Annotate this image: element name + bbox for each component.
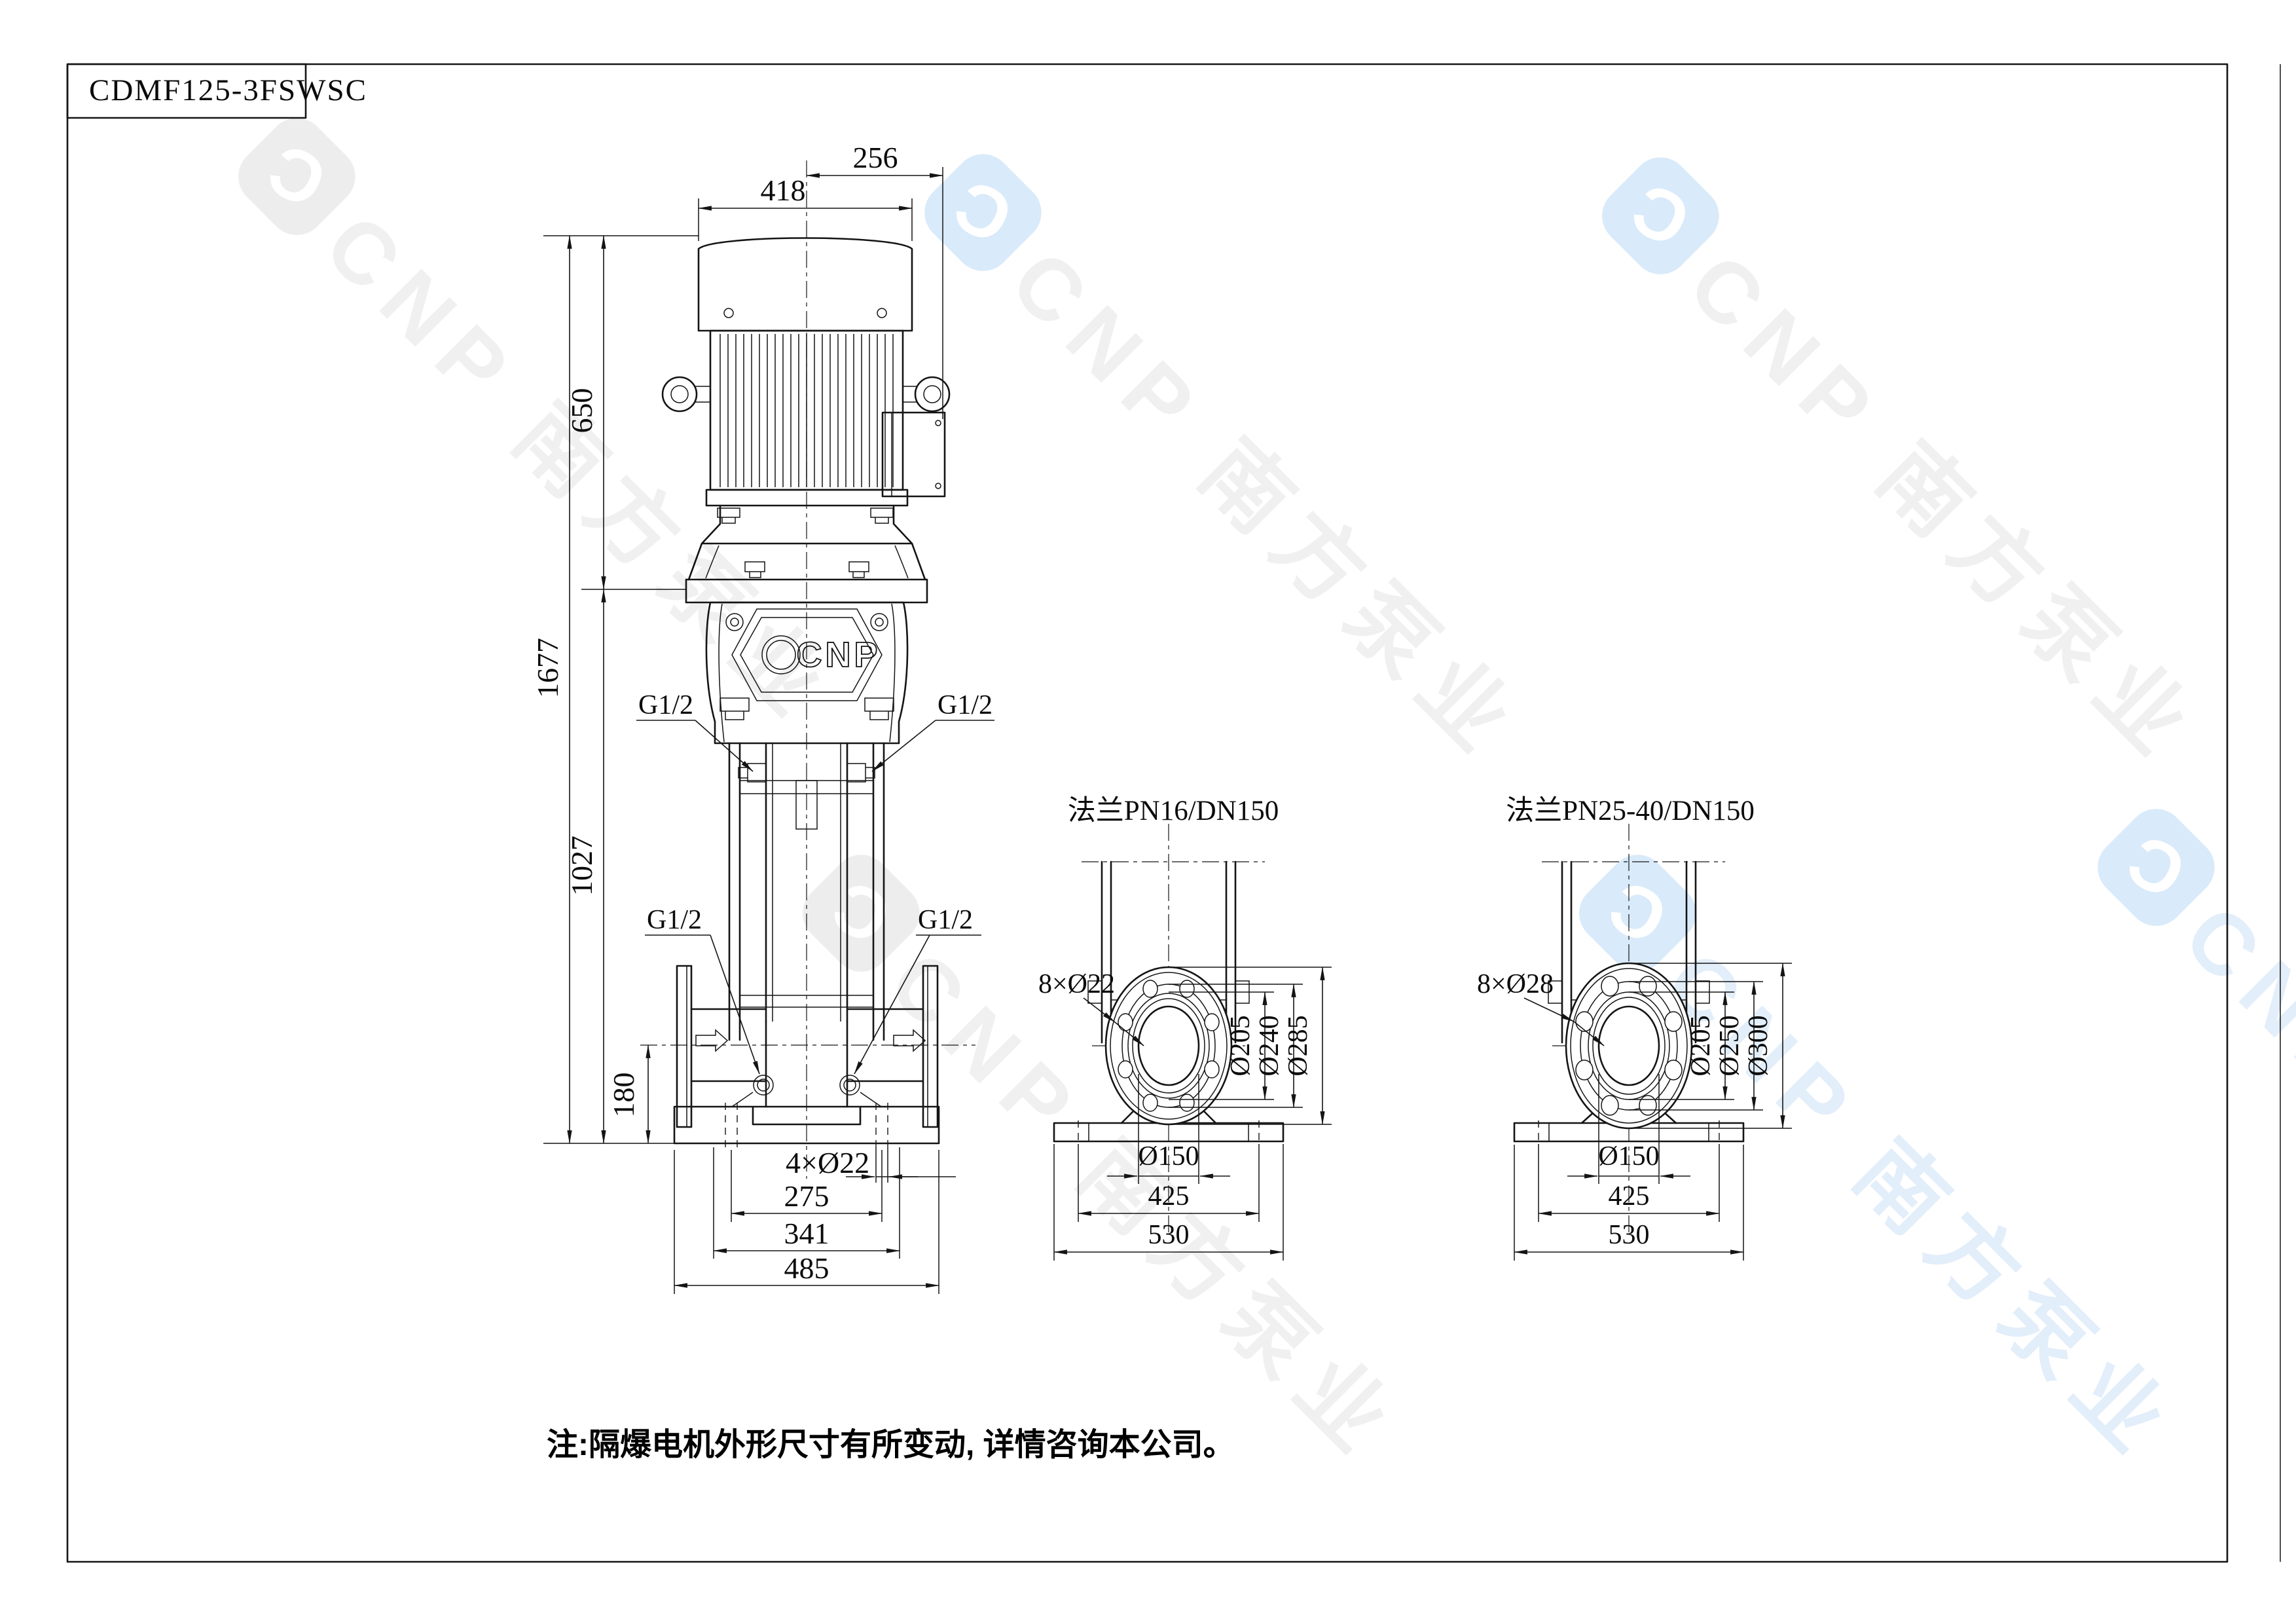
flange2-dim-port: Ø150 (1598, 1141, 1659, 1172)
vent-label-right: G1/2 (938, 690, 993, 720)
drain-label-left: G1/2 (647, 905, 702, 935)
dim-485: 485 (784, 1251, 829, 1285)
terminal-box (883, 413, 945, 496)
drain-label-right: G1/2 (918, 905, 973, 935)
vent-label-left: G1/2 (638, 690, 693, 720)
dim-180: 180 (607, 1073, 640, 1118)
flange1-title: 法兰PN16/DN150 (1068, 796, 1279, 826)
flow-arrow-left (696, 1030, 727, 1051)
flange1-dim-bolt-circle: Ø240 (1254, 1015, 1285, 1076)
flange1-dim-inner: Ø205 (1226, 1015, 1256, 1076)
dim-base-holes: 4×Ø22 (786, 1146, 869, 1179)
emblem-cnp-text: CNP (796, 635, 881, 674)
drawing-note: 注:隔爆电机外形尺寸有所变动, 详情咨询本公司。 (547, 1428, 1235, 1462)
flange1-dim-530: 530 (1148, 1220, 1190, 1250)
flange1-dim-425: 425 (1148, 1181, 1190, 1211)
drawing-model-title: CDMF125-3FSWSC (89, 73, 367, 107)
dim-275: 275 (784, 1179, 829, 1213)
front-view-pump: CNP (640, 160, 975, 1179)
flange1-holes-label: 8×Ø22 (1038, 969, 1115, 999)
flange-view-pn16: 法兰PN16/DN150 8×Ø22 (1038, 796, 1332, 1261)
flange2-dim-inner: Ø205 (1686, 1015, 1716, 1076)
eye-bolt-left (663, 377, 710, 411)
drawing-sheet: C CNP 南方泵业 C CNP 南方泵业 C CNP 南方泵业 C CNP 南… (0, 0, 2296, 1624)
cad-drawing: CDMF125-3FSWSC (0, 0, 2296, 1624)
flange-view-pn25-40: 法兰PN25-40/DN150 8×Ø28 (1477, 796, 1792, 1261)
flange2-title: 法兰PN25-40/DN150 (1506, 796, 1755, 826)
flange2-dim-bolt-circle: Ø250 (1715, 1015, 1745, 1076)
flange2-dim-425: 425 (1609, 1181, 1650, 1211)
dim-418: 418 (761, 174, 806, 207)
flow-arrow-right (894, 1030, 925, 1051)
dim-256: 256 (853, 141, 898, 174)
flange1-dim-outer: Ø285 (1283, 1015, 1313, 1076)
flange2-dim-530: 530 (1609, 1220, 1650, 1250)
dim-1677: 1677 (531, 638, 564, 698)
front-view-dimensions: 418 256 650 1027 1677 180 G1/2 G1/2 G1/2… (531, 141, 994, 1294)
flange2-holes-label: 8×Ø28 (1477, 969, 1554, 999)
flange1-dim-port: Ø150 (1138, 1141, 1199, 1172)
dim-341: 341 (784, 1217, 829, 1250)
flange2-dim-outer: Ø300 (1743, 1015, 1774, 1076)
